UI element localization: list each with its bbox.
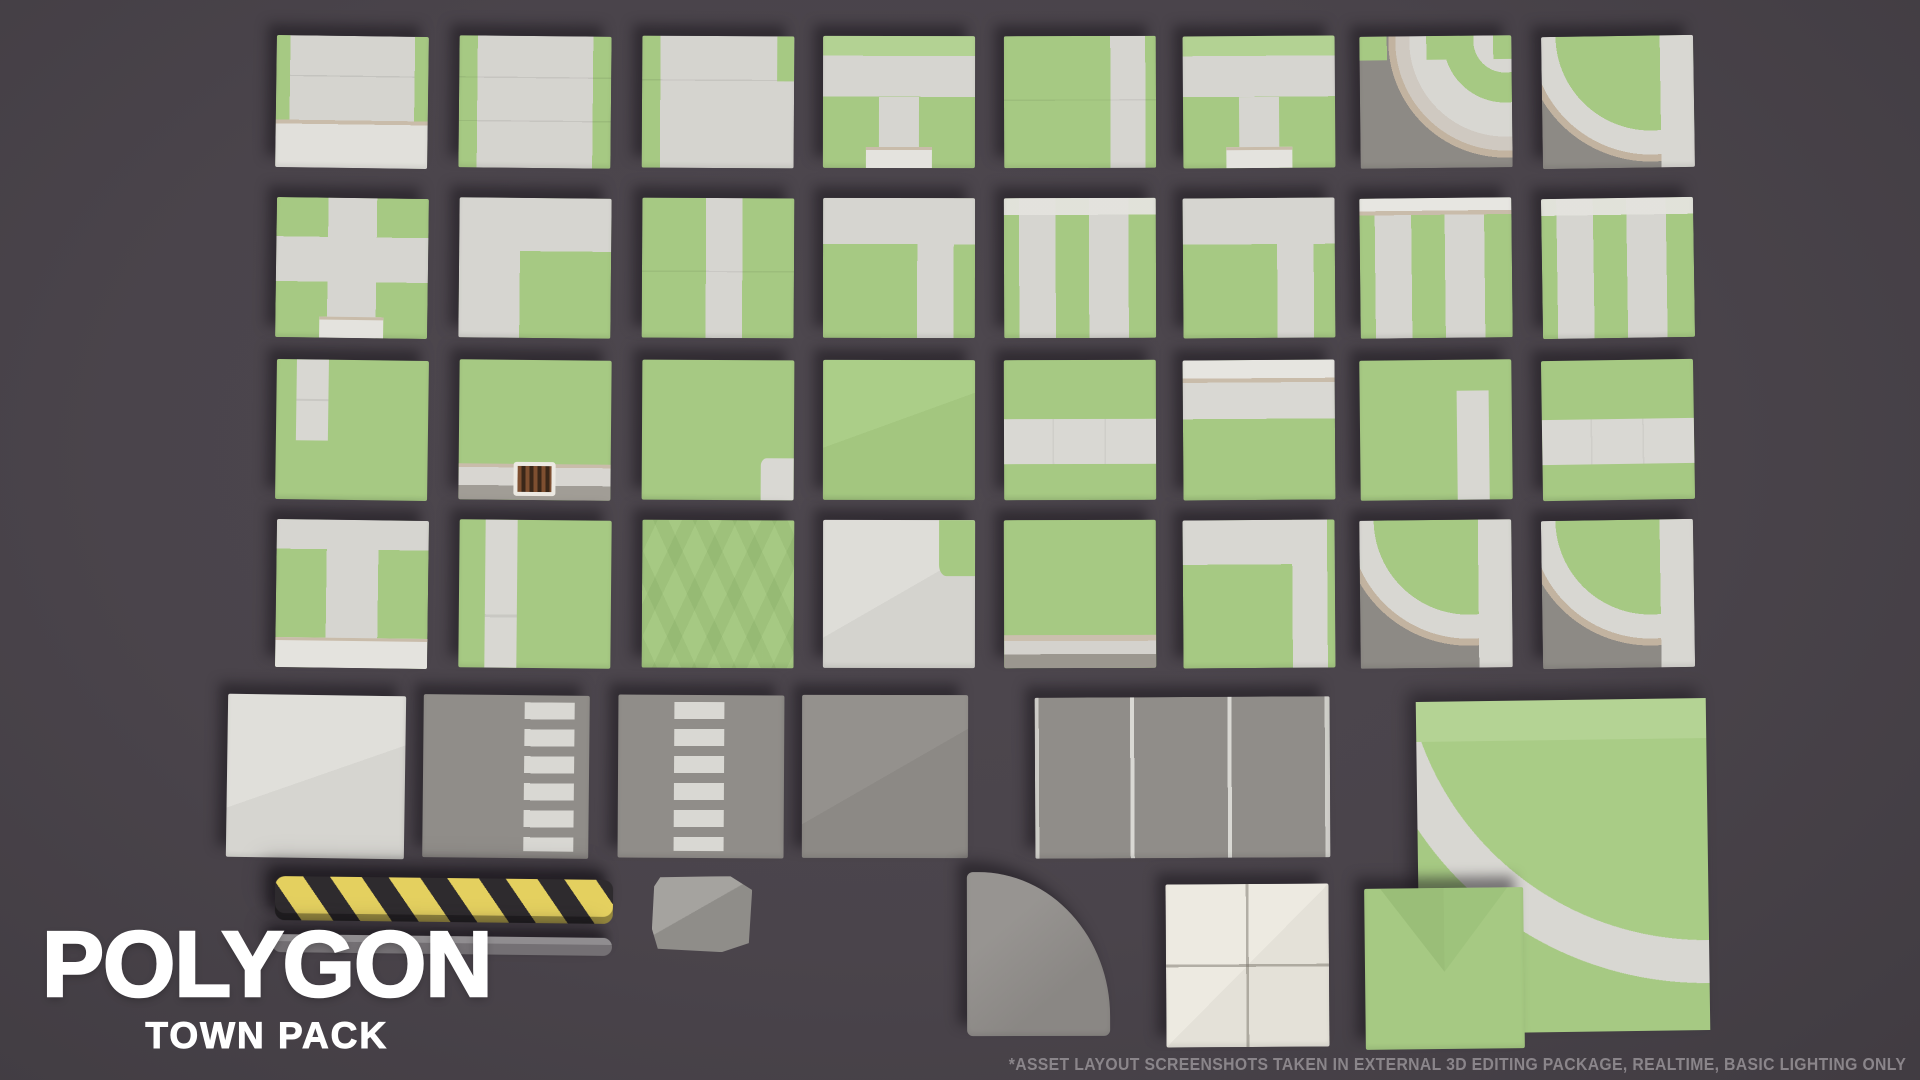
tile-sidewalk-corner-band: [1182, 519, 1335, 668]
tile-curb-curve-c: [1359, 519, 1513, 669]
tile-grass-plain: [823, 360, 975, 500]
tile-grass-road-right: [1004, 36, 1156, 168]
tile-curb-corner-edge: [1541, 35, 1695, 169]
tile-grass-road-horizontal: [1004, 360, 1156, 500]
tile-road-grass-sides: [458, 35, 611, 168]
tile-curb-corner-cross: [1359, 35, 1512, 169]
tile-grass-curb-top: [1183, 359, 1336, 500]
tile-road-end-curb: [275, 35, 429, 169]
tile-pavement-quad: [1165, 883, 1329, 1047]
tile-grass-road-mix: [1004, 198, 1156, 338]
tile-pavement-plain: [226, 694, 406, 860]
tile-sidewalk-tee-curb: [275, 519, 429, 669]
tile-grass-path-left-b: [458, 519, 611, 668]
tile-grass-curb-drain: [458, 359, 611, 500]
tile-grass-road-mix-b: [1541, 197, 1695, 339]
tile-asphalt-plain: [802, 695, 968, 858]
tile-grass-corner-chip: [642, 360, 795, 501]
tile-grass-chevrons: [642, 520, 795, 669]
logo-title: POLYGON: [42, 918, 492, 1011]
tile-sidewalk-tee: [823, 36, 975, 168]
footnote-text: *ASSET LAYOUT SCREENSHOTS TAKEN IN EXTER…: [1009, 1054, 1906, 1075]
tile-sidewalk-cross: [275, 197, 429, 339]
asset-layout-scene: POLYGON TOWN PACK *ASSET LAYOUT SCREENSH…: [0, 0, 1920, 1080]
logo: POLYGON TOWN PACK: [42, 918, 492, 1057]
tile-curb-curve-d: [1541, 519, 1695, 669]
tile-crosswalk-center: [618, 695, 785, 859]
tile-grass-road-mix-curb: [1359, 197, 1513, 339]
rock-block: [652, 876, 752, 953]
tile-sidewalk-top-tee: [823, 198, 975, 338]
tile-grass-path-right: [1359, 359, 1513, 501]
tile-grass-road-horizontal-b: [1541, 359, 1695, 501]
tile-grass-road-center: [642, 198, 795, 339]
tile-grass-curb-bottom: [1004, 520, 1156, 668]
logo-subtitle: TOWN PACK: [42, 1015, 492, 1057]
tile-pavement-grass-corner: [823, 520, 975, 668]
tile-sidewalk-top-tee-b: [1183, 197, 1336, 338]
tile-asphalt-rounded-corner: [967, 872, 1110, 1036]
tile-grass-path-left: [275, 359, 429, 501]
tile-grass-facet: [1364, 887, 1525, 1050]
tile-crosswalk-right: [422, 694, 590, 859]
tile-road-grass-left: [642, 36, 795, 169]
tile-sidewalk-corner: [458, 197, 611, 338]
tile-asphalt-two-lane: [1035, 696, 1331, 858]
tile-sidewalk-tee-b: [1183, 35, 1336, 168]
